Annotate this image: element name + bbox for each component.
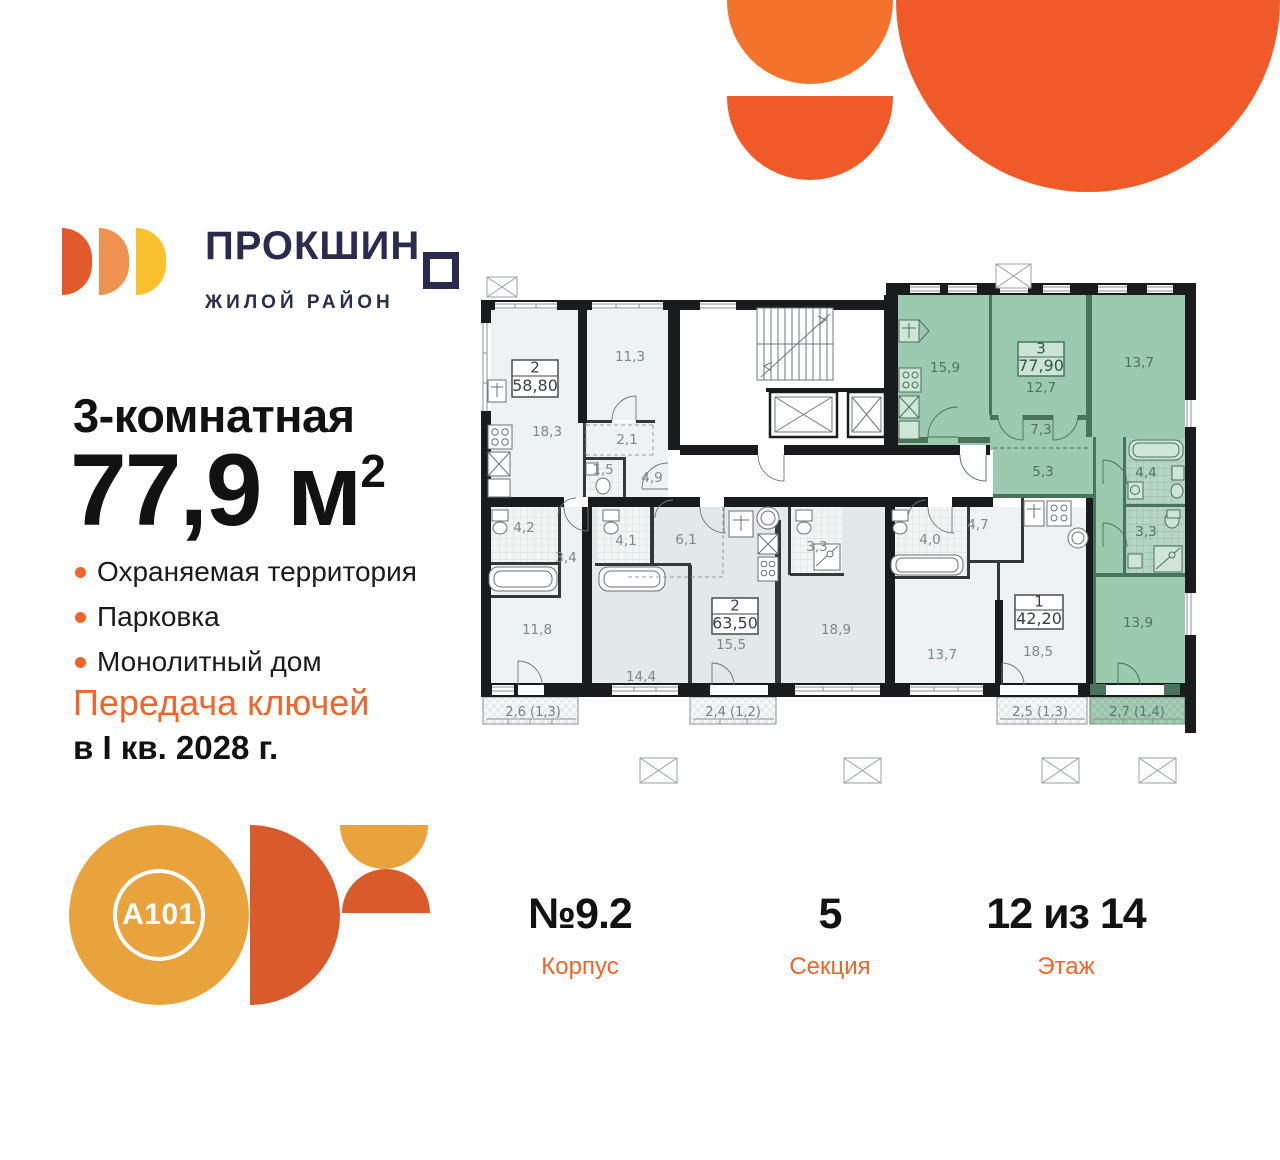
handover-line-2: в I кв. 2028 г. (73, 729, 278, 767)
brand-semicircle-icon (136, 228, 166, 295)
svg-text:15,9: 15,9 (930, 360, 960, 376)
feature-item: Монолитный дом (75, 646, 417, 678)
elevators (770, 392, 885, 437)
brand-name: ПРОКШИНО (205, 224, 459, 289)
svg-text:18,9: 18,9 (821, 622, 851, 638)
svg-text:4,1: 4,1 (615, 533, 636, 549)
svg-text:13,9: 13,9 (1123, 615, 1153, 631)
brand-semicircle-icon (62, 228, 92, 295)
svg-text:4,9: 4,9 (641, 470, 662, 486)
bullet-dot-icon (75, 657, 86, 668)
svg-text:4,0: 4,0 (919, 532, 940, 548)
stat-section: 5 Секция (789, 890, 870, 981)
balcony-labels: 2,6 (1,3) 2,4 (1,2) 2,5 (1,3) 2,7 (1,4) (505, 705, 1165, 720)
brand-text: ПРОКШИНО ЖИЛОЙ РАЙОН (205, 224, 459, 314)
stat-section-value: 5 (789, 890, 870, 939)
stairs (757, 308, 833, 380)
developer-logo-a101: A101 (69, 823, 431, 1005)
stat-building: №9.2 Корпус (528, 890, 632, 981)
svg-text:13,7: 13,7 (927, 647, 957, 663)
svg-text:42,20: 42,20 (1016, 609, 1062, 628)
stat-building-value: №9.2 (528, 890, 632, 939)
svg-text:5,3: 5,3 (1032, 464, 1053, 480)
apartment-label-58-80: 2 58,80 (512, 359, 558, 398)
svg-text:6,1: 6,1 (675, 532, 696, 548)
svg-text:7,3: 7,3 (1030, 422, 1051, 438)
stat-section-label: Секция (789, 953, 870, 981)
handover-line-1: Передача ключей (73, 682, 369, 724)
svg-text:4,2: 4,2 (513, 520, 534, 536)
brand-square-o-icon: О (423, 252, 459, 289)
apartment-label-42-20: 1 42,20 (1015, 593, 1063, 630)
svg-text:11,8: 11,8 (522, 622, 552, 638)
svg-text:3,3: 3,3 (806, 539, 827, 555)
feature-item: Охраняемая территория (75, 556, 417, 588)
svg-text:2: 2 (730, 597, 740, 615)
svg-text:63,50: 63,50 (712, 614, 758, 633)
brand-subtitle: ЖИЛОЙ РАЙОН (205, 292, 459, 314)
feature-item: Парковка (75, 601, 417, 633)
svg-text:3,4: 3,4 (555, 550, 576, 566)
svg-text:4,7: 4,7 (967, 517, 988, 533)
svg-text:18,5: 18,5 (1023, 644, 1053, 660)
deco-half-circle-large (896, 0, 1280, 192)
svg-text:11,3: 11,3 (615, 349, 645, 365)
a101-half-down-icon (340, 825, 428, 869)
feature-list: Охраняемая территория Парковка Монолитны… (75, 556, 417, 691)
floor-plan: 2 58,80 2 63,50 1 42,20 3 77,90 18,3 11,… (478, 258, 1200, 790)
svg-text:14,4: 14,4 (626, 669, 656, 685)
offer-area-sup: 2 (360, 445, 386, 497)
svg-text:2,6 (1,3): 2,6 (1,3) (505, 705, 561, 720)
feature-label: Парковка (97, 601, 220, 633)
apartment-label-63-50: 2 63,50 (712, 597, 758, 635)
bullet-dot-icon (75, 567, 86, 578)
svg-text:58,80: 58,80 (512, 376, 558, 395)
stat-floor-label: Этаж (986, 953, 1145, 981)
svg-text:12,7: 12,7 (1026, 380, 1056, 396)
svg-text:15,5: 15,5 (716, 637, 746, 653)
svg-text:77,90: 77,90 (1018, 356, 1064, 375)
brand-semicircle-icon (99, 228, 129, 295)
a101-half-up-icon (342, 869, 430, 913)
svg-text:13,7: 13,7 (1124, 355, 1154, 371)
deco-half-circle-small-bottom (727, 96, 893, 180)
a101-label: A101 (122, 898, 196, 932)
apartment-label-77-90-highlighted: 3 77,90 (1018, 340, 1064, 377)
stat-floor-value: 12 из 14 (986, 890, 1145, 939)
svg-text:18,3: 18,3 (532, 424, 562, 440)
bullet-dot-icon (75, 612, 86, 623)
a101-ring-icon: A101 (113, 869, 205, 961)
a101-semicircle-icon (250, 825, 340, 1005)
svg-text:2,5 (1,3): 2,5 (1,3) (1012, 705, 1068, 720)
brand-name-prefix: ПРОКШИН (205, 224, 420, 268)
stat-building-label: Корпус (528, 953, 632, 981)
offer-area: 77,9 м2 (70, 432, 386, 549)
svg-text:2: 2 (530, 359, 540, 377)
offer-area-unit: м (287, 433, 360, 547)
feature-label: Охраняемая территория (97, 556, 417, 588)
svg-text:2,4 (1,2): 2,4 (1,2) (705, 705, 761, 720)
svg-text:3: 3 (1036, 340, 1046, 358)
offer-area-value: 77,9 (70, 433, 261, 547)
svg-text:4,4: 4,4 (1135, 465, 1156, 481)
deco-half-circle-small-top (727, 0, 893, 84)
svg-text:2,1: 2,1 (616, 432, 637, 448)
stat-floor: 12 из 14 Этаж (986, 890, 1145, 981)
svg-text:1: 1 (1034, 593, 1044, 611)
feature-label: Монолитный дом (97, 646, 322, 678)
svg-text:1,5: 1,5 (592, 462, 613, 478)
svg-text:2,7 (1,4): 2,7 (1,4) (1109, 705, 1165, 720)
svg-text:3,3: 3,3 (1135, 524, 1156, 540)
